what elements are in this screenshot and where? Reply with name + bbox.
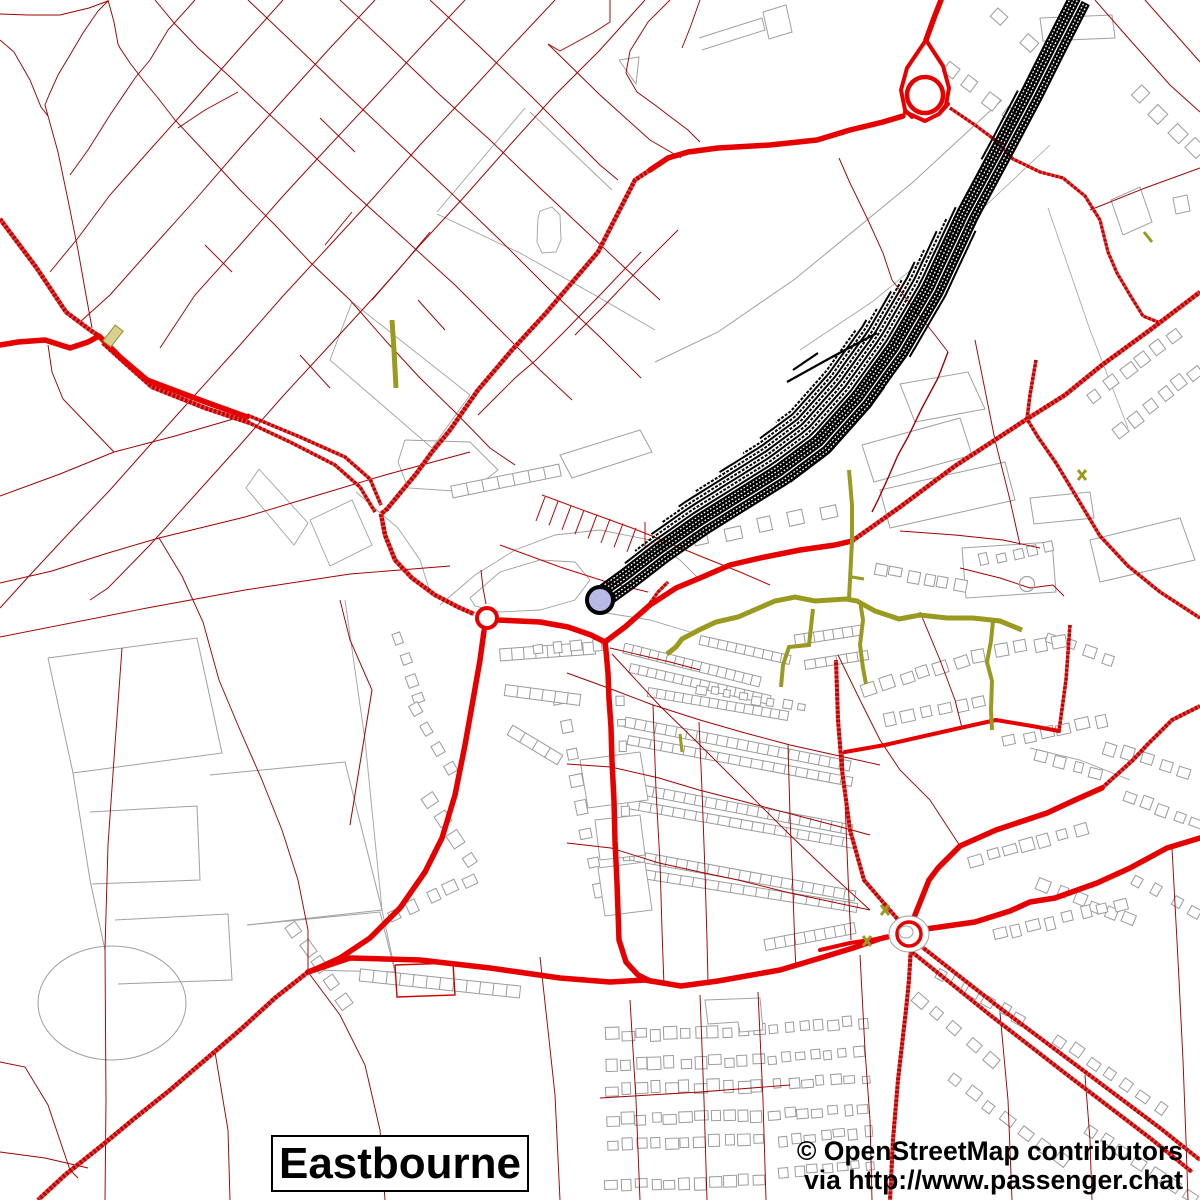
svg-text:via http://www.passenger.chat: via http://www.passenger.chat bbox=[804, 1165, 1183, 1195]
svg-text:Eastbourne: Eastbourne bbox=[279, 1139, 521, 1188]
svg-text:© OpenStreetMap contributors: © OpenStreetMap contributors bbox=[797, 1136, 1183, 1166]
